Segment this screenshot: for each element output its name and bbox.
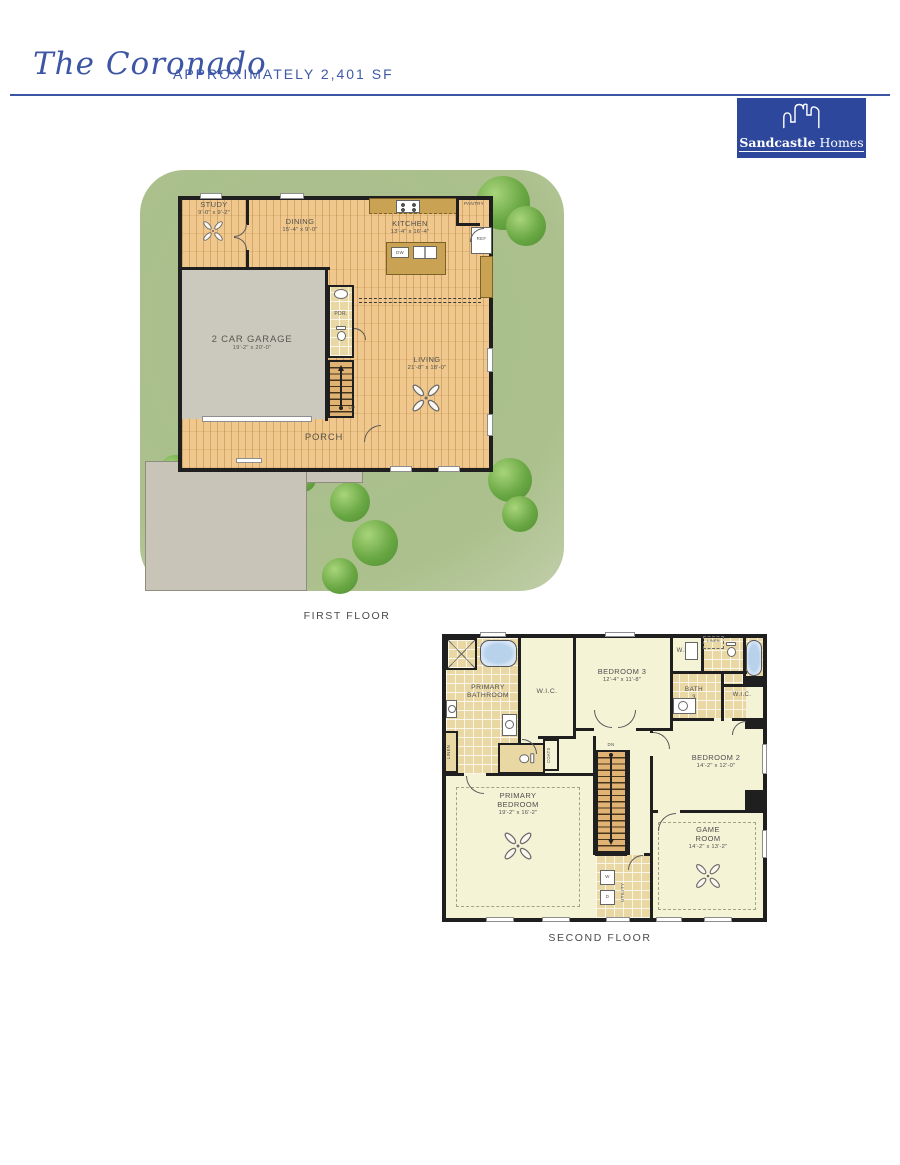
toilet-icon xyxy=(520,753,535,763)
bush xyxy=(322,558,358,594)
wall xyxy=(627,750,630,855)
second-floor-caption: SECOND FLOOR xyxy=(500,932,700,944)
logo-brand-regular: Homes xyxy=(820,135,864,150)
porch-label: PORCH xyxy=(292,432,356,443)
primary-bath-label: PRIMARY BATHROOM xyxy=(458,684,518,700)
room-name: KITCHEN xyxy=(378,220,442,229)
room-dims: 21'-8" x 18'-0" xyxy=(387,365,467,372)
wall xyxy=(595,853,627,856)
study-label: STUDY 9'-0" x 9'-2" xyxy=(184,201,244,217)
up-label: UP xyxy=(345,405,359,410)
primary-bedroom-label: PRIMARY BEDROOM 19'-2" x 16'-2" xyxy=(482,792,554,817)
bedroom2-label: BEDROOM 2 14'-2" x 12'-0" xyxy=(680,754,752,770)
garage-door xyxy=(202,416,312,422)
room-name: STUDY xyxy=(184,201,244,210)
room-name: PRIMARY xyxy=(458,684,518,692)
wic-label: W.I.C. xyxy=(724,692,760,699)
window xyxy=(704,917,732,922)
wall xyxy=(573,636,576,738)
wall xyxy=(670,718,714,721)
room-name: PORCH xyxy=(292,432,356,443)
sink-icon xyxy=(334,289,348,299)
sandcastle-logo: Sandcastle Homes xyxy=(737,98,866,158)
floorplan-sheet: The Coronado APPROXIMATELY 2,401 SF Sand… xyxy=(0,0,900,1165)
wall xyxy=(442,773,464,776)
room-name: W.I.C. xyxy=(522,688,572,696)
dw-label: DW xyxy=(391,250,409,255)
wall xyxy=(178,267,330,270)
wall-mass xyxy=(743,676,763,687)
pdr-label: PDR. xyxy=(328,311,354,317)
room-name: 2 CAR GARAGE xyxy=(202,334,302,345)
castle-icon xyxy=(773,101,831,129)
kitchen-sink-icon xyxy=(413,246,437,259)
closet-shelf xyxy=(685,642,698,660)
wall-mass xyxy=(745,721,763,729)
window xyxy=(762,830,767,858)
window xyxy=(605,632,635,637)
window xyxy=(480,632,506,637)
wall xyxy=(644,853,650,856)
room-name: BEDROOM xyxy=(482,801,554,810)
room-dims: 12'-4" x 11'-8" xyxy=(588,677,656,684)
game-room-label: GAME ROOM 14'-2" x 13'-2" xyxy=(676,826,740,851)
window xyxy=(762,744,767,774)
window xyxy=(542,917,570,922)
logo-wordmark: Sandcastle Homes xyxy=(739,135,863,152)
room-name: W.I.C. xyxy=(724,692,760,699)
stair-arrow xyxy=(610,756,612,840)
stairs-down xyxy=(596,750,627,853)
window xyxy=(487,348,493,372)
stair-arrow-dot xyxy=(339,406,343,410)
ceiling-break-dashes xyxy=(359,298,481,303)
toilet-icon xyxy=(336,326,346,341)
room-dims: 9'-0" x 9'-2" xyxy=(184,210,244,217)
ceiling-fan-icon xyxy=(692,860,724,892)
stove-icon xyxy=(396,200,420,213)
bush xyxy=(352,520,398,566)
linen-label: LINEN xyxy=(703,639,724,643)
window xyxy=(606,917,630,922)
dining-label: DINING 15'-4" x 9'-0" xyxy=(260,218,340,234)
wall xyxy=(456,223,480,226)
garage-label: 2 CAR GARAGE 19'-2" x 20'-0" xyxy=(202,334,302,352)
wall-mass xyxy=(745,790,763,811)
wall xyxy=(246,196,249,225)
window xyxy=(438,466,460,472)
driveway xyxy=(145,461,307,591)
wall xyxy=(636,728,673,731)
stair-arrow-head xyxy=(608,839,614,845)
room-dims: 19'-2" x 16'-2" xyxy=(482,810,554,817)
wall xyxy=(650,810,658,813)
bedroom3-label: BEDROOM 3 12'-4" x 11'-8" xyxy=(588,668,656,684)
plan-sqft: APPROXIMATELY 2,401 SF xyxy=(173,66,394,82)
dn-label: DN xyxy=(597,742,625,747)
wall xyxy=(650,756,653,920)
first-floor-caption: FIRST FLOOR xyxy=(247,610,447,622)
dryer-label: D xyxy=(600,894,615,899)
washer-label: W xyxy=(600,874,615,879)
ceiling-fan-icon xyxy=(200,218,226,244)
bush xyxy=(488,458,532,502)
room-name: LIVING xyxy=(387,356,467,365)
bush xyxy=(330,482,370,522)
room-dims: 13'-4" x 16'-4" xyxy=(378,229,442,236)
tub-icon xyxy=(480,640,517,667)
window xyxy=(487,414,493,436)
window xyxy=(656,917,682,922)
coats-label: COATS xyxy=(546,743,551,767)
stair-arrow-head xyxy=(338,365,344,371)
tub-icon xyxy=(746,640,762,676)
room-dims: 14'-2" x 12'-0" xyxy=(680,763,752,770)
window xyxy=(200,193,222,199)
kitchen-label: KITCHEN 13'-4" x 16'-4" xyxy=(378,220,442,236)
stair-arrow xyxy=(340,370,342,406)
second-floor-plan: LINEN PRIMARY BATHROOM W.I.C. BEDROOM 3 … xyxy=(442,632,768,923)
wall xyxy=(670,671,747,674)
room-name: BATH xyxy=(678,686,710,694)
room-name: BATHROOM xyxy=(458,692,518,700)
living-label: LIVING 21'-8" x 18'-0" xyxy=(387,356,467,372)
utility-label: UTILITY xyxy=(620,872,625,912)
linen-label: LINEN xyxy=(446,736,451,768)
header-rule xyxy=(10,94,890,96)
room-name: DINING xyxy=(260,218,340,227)
sink-icon xyxy=(448,705,456,713)
wall xyxy=(246,250,249,270)
ceiling-fan-icon xyxy=(500,828,536,864)
room-dims: 14'-2" x 13'-2" xyxy=(676,844,740,851)
wic-label: W.I.C. xyxy=(522,688,572,696)
toilet-icon xyxy=(726,642,736,657)
ceiling-fan-icon xyxy=(408,380,444,416)
window xyxy=(280,193,304,199)
window xyxy=(390,466,412,472)
sink-icon xyxy=(678,701,688,711)
window xyxy=(486,917,514,922)
sink-icon xyxy=(505,720,514,729)
porch-step-pad xyxy=(236,458,262,463)
room-name: ROOM xyxy=(676,835,740,844)
room-dims: 19'-2" x 20'-0" xyxy=(202,345,302,352)
shower-icon xyxy=(446,638,477,670)
logo-brand-bold: Sandcastle xyxy=(739,135,815,150)
pantry-label: PANTRY xyxy=(456,201,492,206)
room-name: BEDROOM 3 xyxy=(588,668,656,677)
room-name: BEDROOM 2 xyxy=(680,754,752,763)
bush xyxy=(502,496,538,532)
kitchen-counter-right xyxy=(480,256,493,298)
room-dims: 15'-4" x 9'-0" xyxy=(260,227,340,234)
wall xyxy=(573,728,594,731)
tree xyxy=(506,206,546,246)
first-floor-plan: PANTRY REF DW PDR. UP STUDY xyxy=(140,170,564,591)
